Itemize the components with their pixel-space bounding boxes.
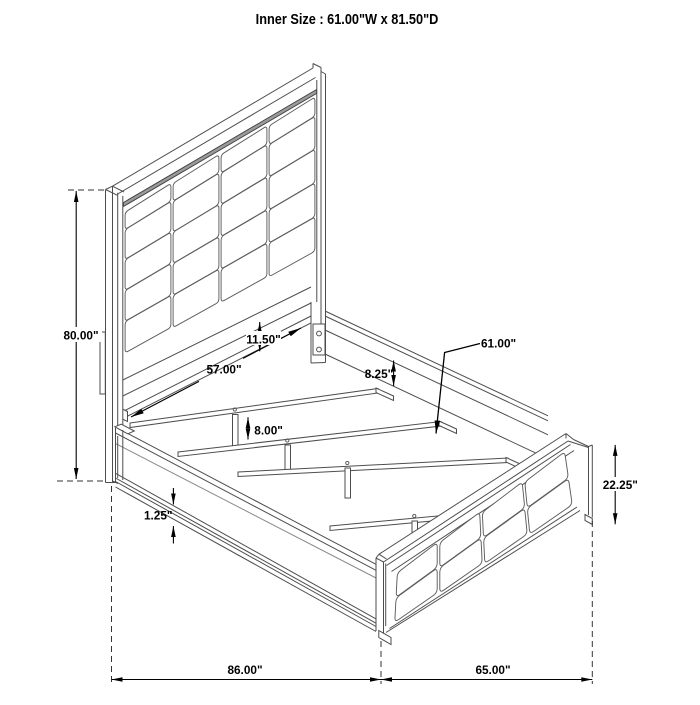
svg-text:Inner Size : 61.00"W x 81.50"D: Inner Size : 61.00"W x 81.50"D <box>256 10 439 27</box>
svg-text:61.00": 61.00" <box>481 337 516 351</box>
svg-text:80.00": 80.00" <box>63 329 98 343</box>
svg-text:8.25": 8.25" <box>365 367 394 381</box>
svg-text:86.00": 86.00" <box>227 663 262 677</box>
svg-text:22.25": 22.25" <box>603 478 638 492</box>
svg-text:65.00": 65.00" <box>475 663 510 677</box>
svg-text:1.25": 1.25" <box>144 509 173 523</box>
svg-text:8.00": 8.00" <box>254 424 283 438</box>
svg-text:57.00": 57.00" <box>206 363 241 377</box>
svg-text:11.50": 11.50" <box>246 333 280 347</box>
